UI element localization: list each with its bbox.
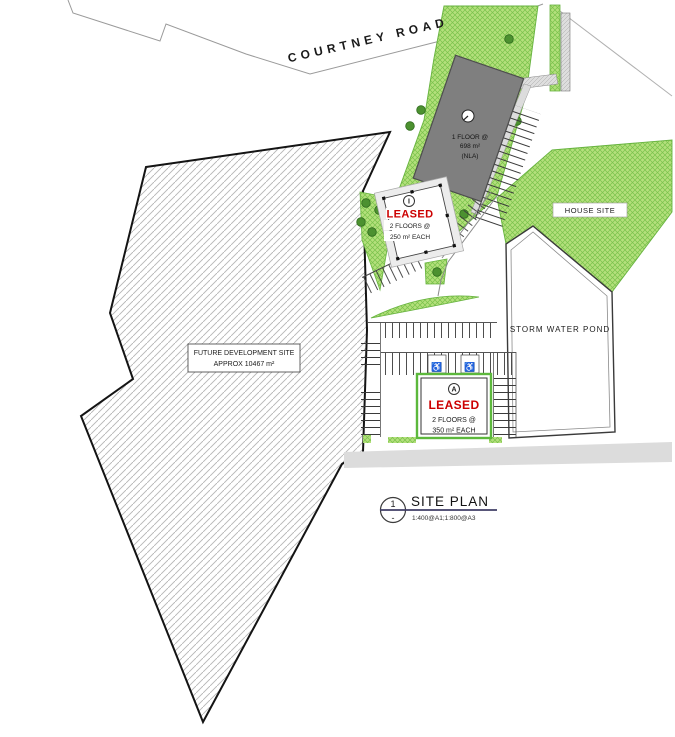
future-development-site-area (81, 132, 390, 722)
parking-col-right (494, 378, 516, 436)
future-development-label: FUTURE DEVELOPMENT SITE APPROX 10467 m² (188, 344, 300, 372)
leased-area: 250 m² EACH (390, 234, 430, 241)
landscape-crescent (371, 296, 479, 318)
road-edge-lines (68, 0, 672, 96)
bush (505, 35, 514, 44)
main-building-nla: (NLA) (462, 153, 479, 160)
leased-area: 350 m² EACH (432, 428, 475, 435)
main-building-floors: 1 FLOOR @ (452, 134, 489, 141)
unit-marker-letter: A (451, 387, 456, 394)
parking-row-1 (381, 323, 493, 338)
pond-label: STORM WATER POND (510, 325, 610, 334)
bush (417, 106, 426, 115)
bush (406, 122, 415, 131)
future-site-line1: FUTURE DEVELOPMENT SITE (194, 350, 295, 357)
unit-marker-letter: I (408, 199, 410, 206)
leased-unit-a: A LEASED 2 FLOORS @ 350 m² EACH (417, 374, 491, 438)
bush (362, 199, 371, 208)
leased-status: LEASED (428, 398, 479, 412)
house-site: HOUSE SITE (553, 203, 627, 217)
leased-status: LEASED (386, 209, 433, 221)
road-label: COURTNEY ROAD (286, 15, 449, 66)
wheelchair-icon: ♿ (431, 361, 442, 372)
bush (357, 218, 366, 227)
future-site-line2: APPROX 10467 m² (214, 361, 275, 368)
wall-east (561, 13, 570, 91)
site-plan-canvas: STORM WATER POND ♿ ♿ (0, 0, 675, 737)
drawing-scale: 1:400@A1;1:800@A3 (412, 515, 476, 522)
drawing-title: SITE PLAN (411, 494, 489, 509)
main-building-area: 698 m² (460, 143, 481, 150)
parking-col-left-2 (361, 390, 380, 437)
access-road-strip (344, 442, 672, 468)
bush (433, 268, 442, 277)
title-block: 1 - SITE PLAN 1:400@A1;1:800@A3 (380, 494, 497, 523)
leased-floors: 2 FLOORS @ (390, 223, 431, 230)
landscape-edge-left (388, 437, 416, 443)
road-edge-east-line (556, 8, 672, 96)
wheelchair-icon: ♿ (464, 361, 475, 372)
detail-number: 1 (390, 499, 395, 509)
parking-col-left-1 (361, 337, 380, 369)
detail-sub: - (392, 513, 395, 523)
house-site-label: HOUSE SITE (565, 206, 615, 215)
parking-row-2 (382, 353, 516, 375)
bush (368, 228, 377, 237)
site-plan-page: STORM WATER POND ♿ ♿ (0, 0, 675, 737)
leased-floors: 2 FLOORS @ (432, 417, 476, 424)
